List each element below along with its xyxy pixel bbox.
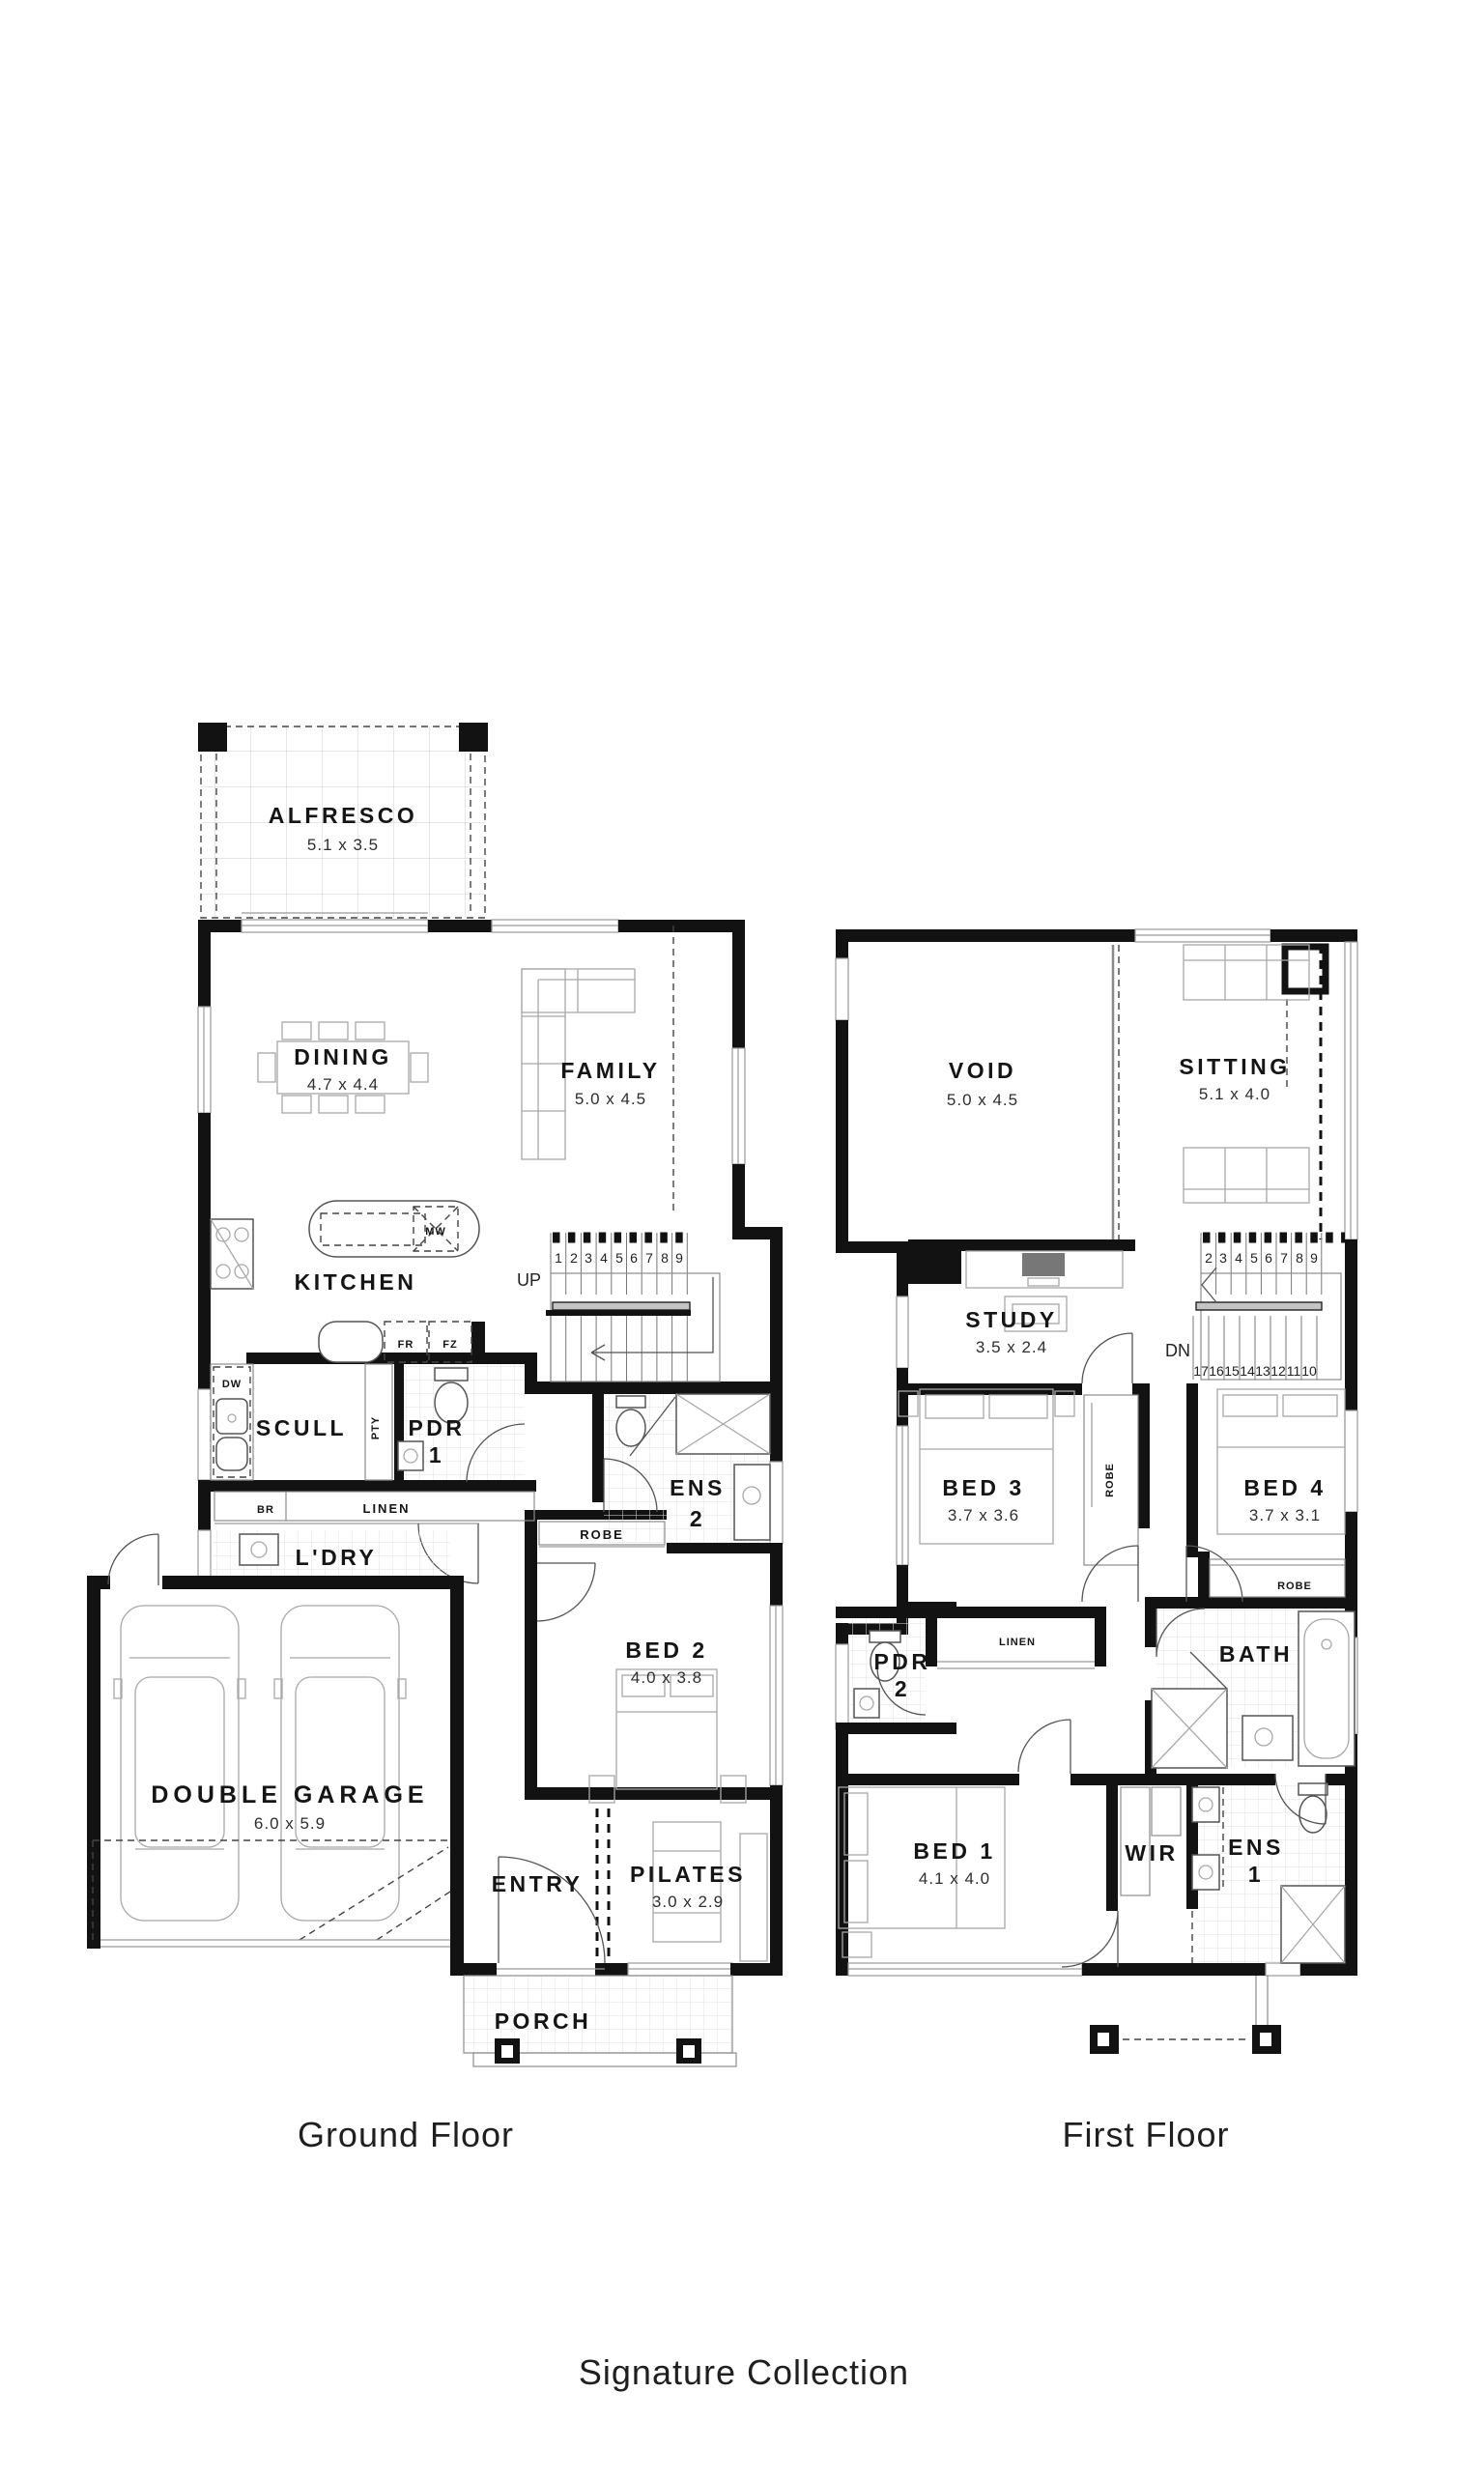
toilet-tank bbox=[435, 1368, 468, 1381]
room-label-pdr2: PDR bbox=[873, 1649, 930, 1674]
stairs-ground: 1 2 3 4 5 6 7 8 9 UP bbox=[517, 1233, 720, 1381]
room-label-kitchen: KITCHEN bbox=[295, 1269, 417, 1295]
stairs-first: 2 3 4 5 6 7 8 9 17 16 15 14 13 12 11 10 … bbox=[1165, 1233, 1345, 1380]
stair-number: 5 bbox=[615, 1250, 623, 1266]
room-label-bed4: BED 4 bbox=[1243, 1475, 1326, 1500]
car bbox=[274, 1606, 406, 1921]
room-label-scull: SCULL bbox=[256, 1415, 347, 1440]
ens2-room bbox=[604, 1394, 770, 1543]
stair-number: 9 bbox=[675, 1250, 683, 1266]
bed3-door bbox=[1082, 1546, 1138, 1602]
laundry-trough bbox=[240, 1534, 278, 1565]
stair-number: 7 bbox=[1280, 1250, 1288, 1266]
alfresco-post bbox=[459, 723, 488, 752]
room-dim-void: 5.0 x 4.5 bbox=[947, 1091, 1018, 1109]
room-dim-pilates: 3.0 x 2.9 bbox=[652, 1893, 724, 1911]
room-dim-dining: 4.7 x 4.4 bbox=[307, 1075, 379, 1094]
room-label-br: BR bbox=[257, 1504, 274, 1516]
room-dim-garage: 6.0 x 5.9 bbox=[254, 1814, 326, 1833]
stair-number: 8 bbox=[1296, 1250, 1303, 1266]
stair-number: 13 bbox=[1255, 1363, 1270, 1379]
entry-pilates-opening bbox=[597, 1809, 609, 1961]
bed1-door bbox=[1018, 1720, 1070, 1774]
bed2-door bbox=[537, 1563, 595, 1621]
cooktop bbox=[211, 1219, 253, 1289]
microwave-label: MW bbox=[425, 1226, 446, 1238]
stair-number: 17 bbox=[1193, 1363, 1209, 1379]
stair-number: 9 bbox=[1310, 1250, 1318, 1266]
room-label-entry: ENTRY bbox=[492, 1871, 584, 1896]
stairs-direction-up: UP bbox=[517, 1270, 541, 1290]
floor-plan-canvas: ALFRESCO 5.1 x 3.5 bbox=[0, 0, 1484, 2473]
toilet-tank bbox=[870, 1631, 900, 1642]
room-dim-family: 5.0 x 4.5 bbox=[575, 1090, 646, 1108]
stair-number: 11 bbox=[1287, 1363, 1301, 1379]
room-label-pantry: PTY bbox=[370, 1416, 382, 1439]
bed2-bed bbox=[589, 1669, 746, 1803]
room-label-family: FAMILY bbox=[560, 1058, 660, 1083]
ens1-room bbox=[1192, 1774, 1345, 1963]
toilet-tank bbox=[616, 1396, 645, 1408]
room-label-bed3: BED 3 bbox=[942, 1475, 1024, 1500]
ground-floor-caption: Ground Floor bbox=[298, 2115, 514, 2154]
sitting-sofa bbox=[1184, 1148, 1309, 1203]
stair-number: 3 bbox=[585, 1250, 592, 1266]
room-label-ens2: ENS bbox=[670, 1475, 726, 1500]
bathtub-icon bbox=[1298, 1611, 1355, 1766]
bath-room bbox=[1152, 1609, 1355, 1768]
room-dim-study: 3.5 x 2.4 bbox=[976, 1338, 1047, 1356]
wir-room bbox=[1062, 1787, 1181, 1967]
collection-title: Signature Collection bbox=[579, 2352, 909, 2392]
stair-number: 6 bbox=[630, 1250, 638, 1266]
room-number-ens2: 2 bbox=[690, 1506, 705, 1531]
alfresco-area: ALFRESCO 5.1 x 3.5 bbox=[198, 723, 488, 918]
stair-number: 8 bbox=[661, 1250, 669, 1266]
stair-number: 14 bbox=[1240, 1363, 1255, 1379]
ground-floor-plan: ALFRESCO 5.1 x 3.5 bbox=[87, 723, 783, 2066]
room-label-wir: WIR bbox=[1125, 1840, 1178, 1866]
room-label-pdr1: PDR bbox=[408, 1415, 465, 1440]
stairs-direction-dn: DN bbox=[1165, 1341, 1190, 1360]
room-label-sitting: SITTING bbox=[1179, 1054, 1290, 1079]
room-label-alfresco: ALFRESCO bbox=[269, 803, 418, 828]
pilates-room bbox=[653, 1822, 767, 1961]
room-dim-bed3: 3.7 x 3.6 bbox=[948, 1506, 1019, 1524]
stair-number: 7 bbox=[645, 1250, 653, 1266]
room-number-pdr2: 2 bbox=[895, 1676, 910, 1701]
room-number-ens1: 1 bbox=[1248, 1862, 1264, 1887]
stair-number: 2 bbox=[570, 1250, 578, 1266]
stair-number: 4 bbox=[600, 1250, 608, 1266]
room-label-dining: DINING bbox=[294, 1044, 392, 1069]
stair-number: 5 bbox=[1250, 1250, 1258, 1266]
toilet-icon bbox=[616, 1410, 645, 1446]
basin-icon bbox=[854, 1689, 879, 1718]
room-label-ens1: ENS bbox=[1228, 1835, 1284, 1860]
fridge-label: FR bbox=[398, 1339, 414, 1351]
vanity-icon bbox=[734, 1465, 770, 1540]
freezer-label: FZ bbox=[442, 1339, 457, 1351]
room-dim-alfresco: 5.1 x 3.5 bbox=[307, 836, 379, 854]
stair-number: 12 bbox=[1270, 1363, 1286, 1379]
room-label-linen-first: LINEN bbox=[999, 1637, 1036, 1648]
room-dim-sitting: 5.1 x 4.0 bbox=[1199, 1085, 1270, 1103]
room-label-robe4: ROBE bbox=[1277, 1581, 1312, 1592]
garage-door-arc bbox=[108, 1534, 158, 1585]
linen-first bbox=[937, 1662, 1095, 1668]
kitchen-island bbox=[309, 1201, 479, 1257]
stair-number: 2 bbox=[1205, 1250, 1213, 1266]
room-label-bed1: BED 1 bbox=[913, 1838, 995, 1864]
room-label-void: VOID bbox=[949, 1058, 1016, 1083]
stair-number: 6 bbox=[1265, 1250, 1272, 1266]
stair-number: 10 bbox=[1301, 1363, 1317, 1379]
vanity-icon bbox=[1242, 1716, 1293, 1760]
toilet-icon bbox=[1299, 1796, 1327, 1833]
room-label-robe3: ROBE bbox=[1104, 1463, 1116, 1497]
room-label-study: STUDY bbox=[965, 1307, 1057, 1332]
stair-number: 15 bbox=[1224, 1363, 1240, 1379]
computer-icon bbox=[1022, 1253, 1065, 1276]
stair-number: 3 bbox=[1219, 1250, 1227, 1266]
room-label-robe: ROBE bbox=[580, 1527, 624, 1542]
room-label-pilates: PILATES bbox=[630, 1862, 746, 1887]
toilet-tank bbox=[1298, 1783, 1327, 1795]
study-door bbox=[1082, 1333, 1132, 1383]
basin-icon bbox=[1192, 1787, 1219, 1822]
room-label-porch: PORCH bbox=[495, 2008, 592, 2034]
first-floor-caption: First Floor bbox=[1063, 2115, 1230, 2154]
room-dim-bed4: 3.7 x 3.1 bbox=[1249, 1506, 1321, 1524]
first-floor-plan: VOID 5.0 x 4.5 SITTING 5.1 x 4.0 bbox=[836, 929, 1357, 2054]
room-label-laundry: L'DRY bbox=[296, 1545, 378, 1570]
garage bbox=[87, 1534, 464, 1976]
basin-icon bbox=[398, 1441, 423, 1470]
stair-number: 16 bbox=[1209, 1363, 1224, 1379]
dishwasher-label: DW bbox=[222, 1379, 242, 1390]
room-label-garage: DOUBLE GARAGE bbox=[151, 1781, 428, 1809]
alfresco-post bbox=[198, 723, 227, 752]
first-porch-posts bbox=[1090, 1976, 1281, 2054]
room-label-bath: BATH bbox=[1219, 1641, 1293, 1666]
room-label-linen: LINEN bbox=[363, 1501, 411, 1516]
car bbox=[114, 1606, 245, 1921]
stair-number: 4 bbox=[1235, 1250, 1242, 1266]
room-dim-bed1: 4.1 x 4.0 bbox=[919, 1869, 990, 1888]
basin-icon bbox=[1192, 1855, 1219, 1890]
room-dim-bed2: 4.0 x 3.8 bbox=[631, 1668, 702, 1687]
room-number-pdr1: 1 bbox=[429, 1442, 444, 1467]
stair-number: 1 bbox=[555, 1250, 562, 1266]
room-label-bed2: BED 2 bbox=[625, 1638, 707, 1663]
